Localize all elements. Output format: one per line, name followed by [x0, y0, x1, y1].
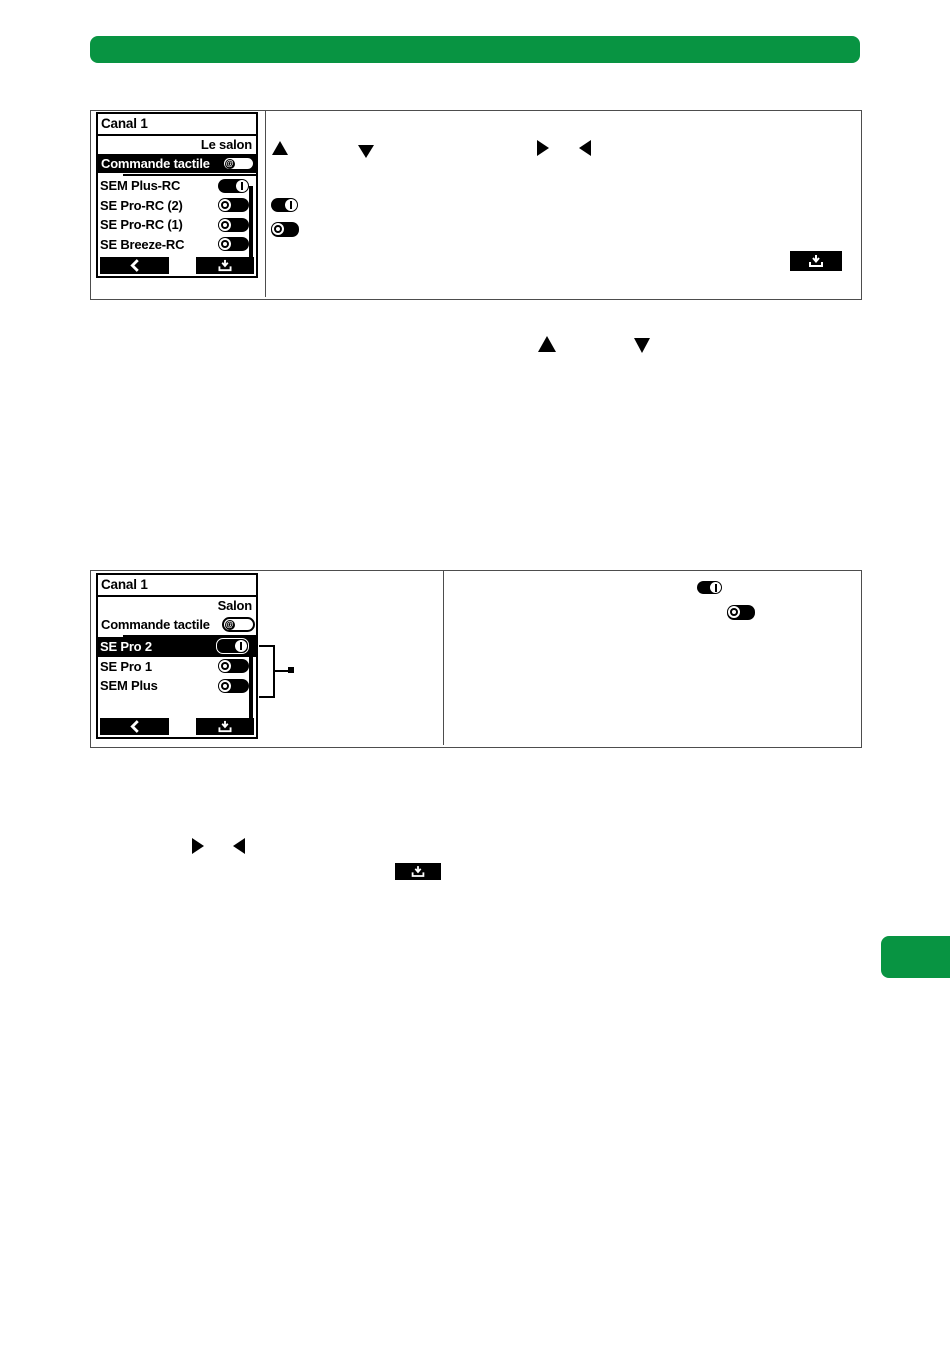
screen1-touch-row: Commande tactile @ — [98, 154, 256, 173]
header-green-bar — [90, 36, 860, 63]
device-row: SEM Plus — [98, 676, 256, 696]
device-row: SE Pro 1 — [98, 657, 256, 677]
toggle-on-icon — [271, 198, 298, 212]
nav-gap — [169, 718, 196, 735]
arrow-right-icon — [537, 140, 549, 156]
device-row: SE Pro-RC (2) — [98, 196, 256, 216]
screen2-room-label: Salon — [98, 597, 256, 614]
screen1-touch-label: Commande tactile — [101, 156, 210, 171]
device-label: SEM Plus — [100, 678, 158, 693]
touch-toggle-icon[interactable]: @ — [222, 156, 255, 171]
screen1-nav-bar — [100, 257, 254, 274]
figure1-divider — [265, 111, 266, 297]
side-page-tab — [881, 936, 950, 978]
device-label: SE Pro 2 — [100, 639, 152, 654]
save-enter-icon — [806, 254, 826, 268]
device-row: SE Pro-RC (1) — [98, 215, 256, 235]
nav-gap — [169, 257, 196, 274]
arrow-down-icon — [634, 338, 650, 353]
toggle-off-icon — [271, 222, 299, 237]
device-toggle[interactable] — [218, 679, 249, 693]
confirm-button[interactable] — [196, 718, 254, 735]
toggle-on-icon — [697, 581, 722, 594]
device-label: SE Pro-RC (2) — [100, 198, 183, 213]
arrow-right-icon — [192, 838, 204, 854]
device-label: SE Pro-RC (1) — [100, 217, 183, 232]
touch-toggle-icon[interactable]: @ — [222, 617, 255, 632]
screen2-touch-label: Commande tactile — [101, 617, 210, 632]
manual-page: Canal 1 Le salon Commande tactile @ SEM … — [0, 0, 950, 1348]
device-toggle[interactable] — [218, 179, 249, 193]
save-enter-icon — [214, 259, 236, 272]
save-enter-icon — [409, 865, 427, 878]
save-enter-icon — [214, 720, 236, 733]
back-button[interactable] — [100, 718, 169, 735]
device-toggle[interactable] — [218, 659, 249, 673]
screen2-nav-bar — [100, 718, 254, 735]
device-toggle[interactable] — [218, 237, 249, 251]
device-row: SEM Plus-RC — [98, 176, 256, 196]
scrollbar[interactable] — [249, 647, 253, 725]
screen2-title: Canal 1 — [98, 575, 256, 597]
scrollbar[interactable] — [249, 186, 253, 262]
screen2-touch-row: Commande tactile @ — [98, 615, 256, 634]
back-button[interactable] — [100, 257, 169, 274]
device-row: SE Breeze-RC — [98, 235, 256, 255]
remote-screen-1: Canal 1 Le salon Commande tactile @ SEM … — [96, 112, 258, 278]
device-label: SEM Plus-RC — [100, 178, 180, 193]
callout-dot — [288, 667, 294, 673]
confirm-button[interactable] — [196, 257, 254, 274]
arrow-up-icon — [272, 141, 288, 155]
device-label: SE Pro 1 — [100, 659, 152, 674]
figure2-divider — [443, 571, 444, 745]
toggle-off-icon — [727, 605, 755, 620]
save-button-icon — [790, 251, 842, 271]
arrow-down-icon — [358, 145, 374, 158]
device-toggle[interactable] — [218, 218, 249, 232]
arrow-left-icon — [233, 838, 245, 854]
device-toggle[interactable] — [218, 198, 249, 212]
screen1-room-label: Le salon — [98, 136, 256, 153]
screen1-title: Canal 1 — [98, 114, 256, 136]
chevron-left-icon — [129, 259, 140, 272]
remote-screen-2: Canal 1 Salon Commande tactile @ SE Pro … — [96, 573, 258, 739]
device-row-selected: SE Pro 2 — [98, 637, 256, 657]
save-button-icon — [395, 863, 441, 880]
arrow-up-icon — [538, 336, 556, 352]
arrow-left-icon — [579, 140, 591, 156]
chevron-left-icon — [129, 720, 140, 733]
device-label: SE Breeze-RC — [100, 237, 184, 252]
device-toggle[interactable] — [216, 638, 249, 654]
